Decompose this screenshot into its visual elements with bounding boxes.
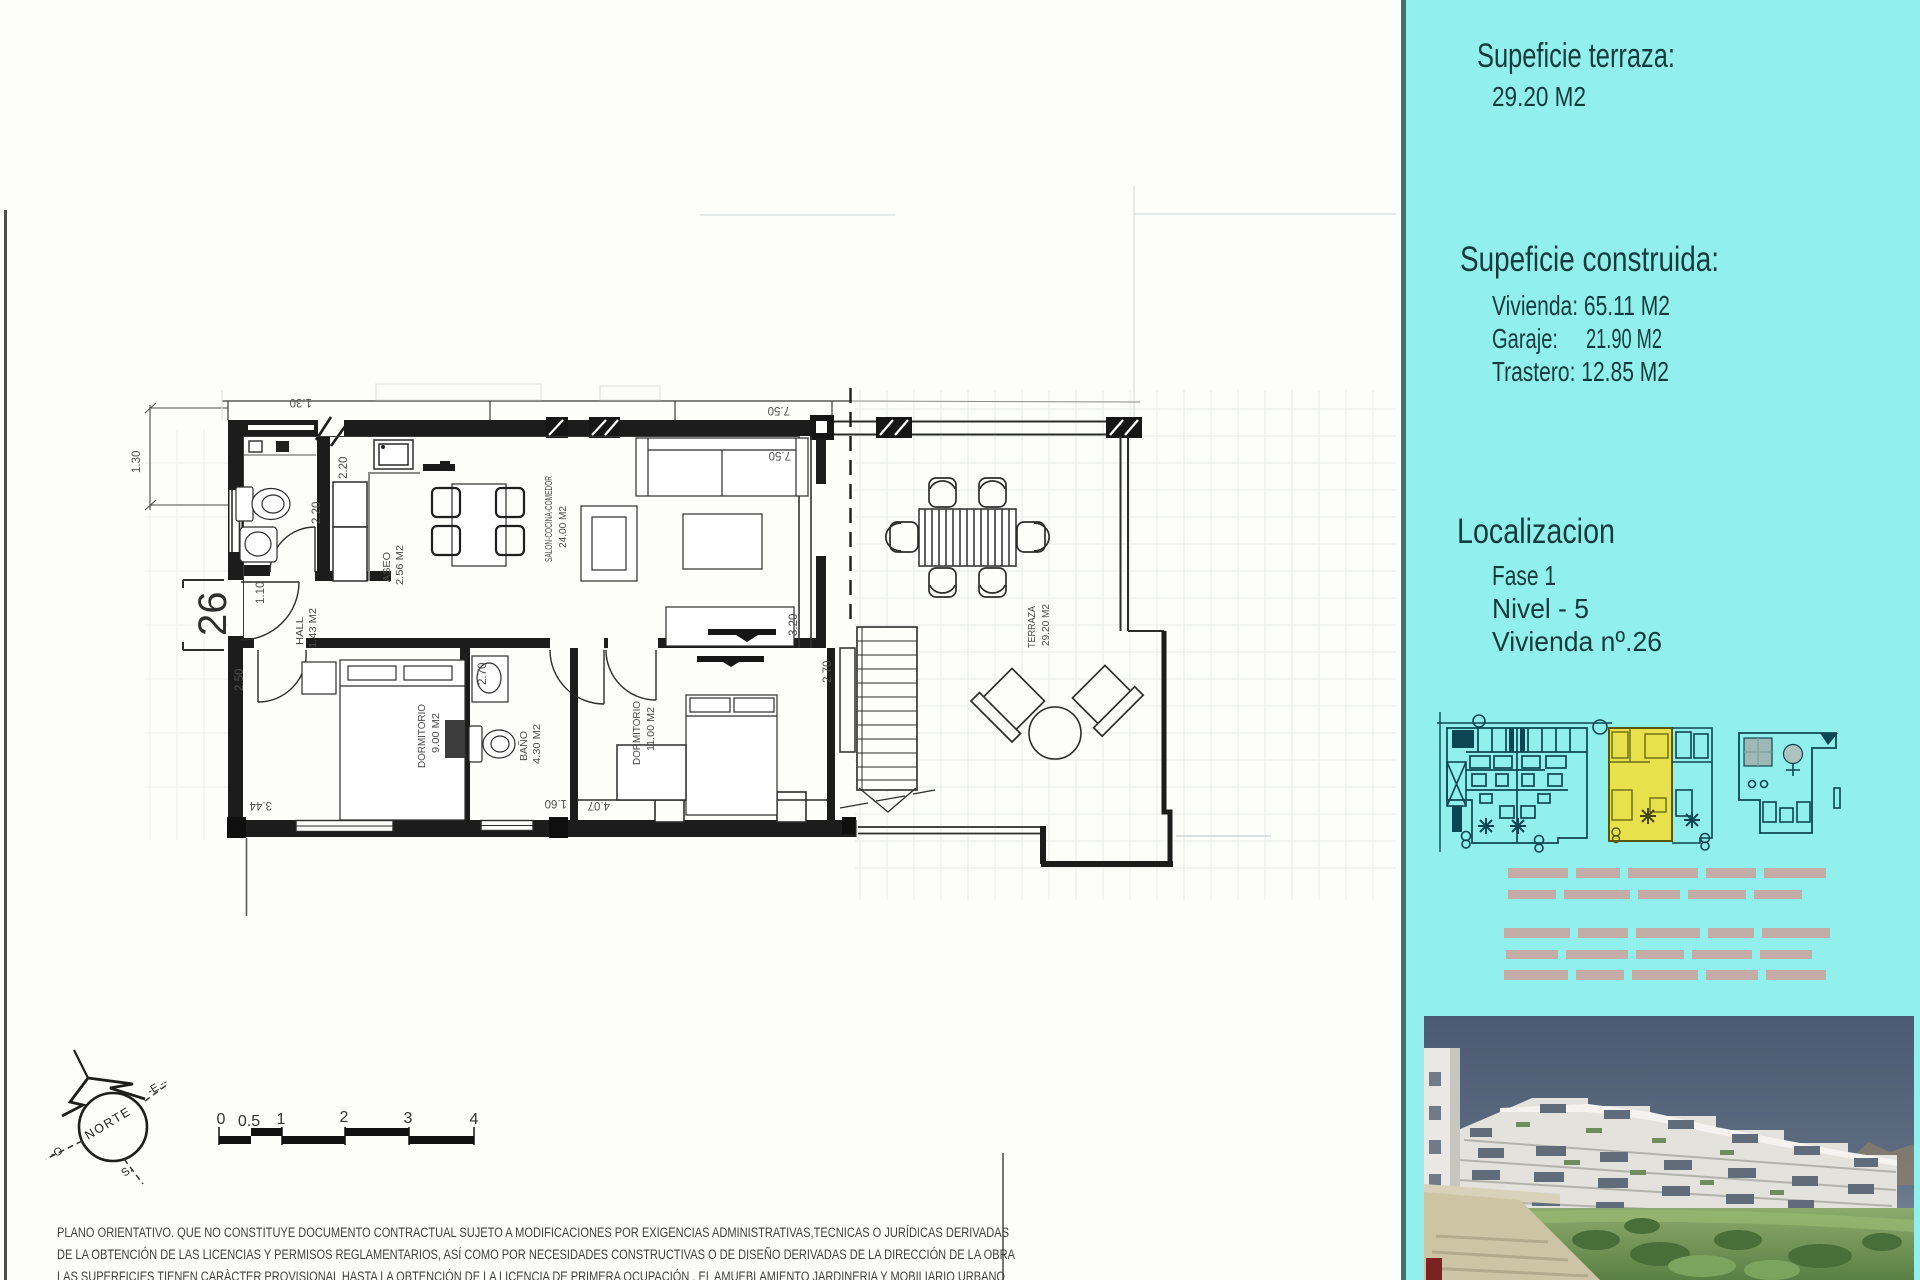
svg-text:29.20 M2: 29.20 M2 (1492, 81, 1586, 112)
svg-text:Localizacion: Localizacion (1457, 512, 1615, 551)
svg-text:Supeficie terraza:: Supeficie terraza: (1477, 37, 1675, 75)
svg-text:TERRAZA: TERRAZA (1027, 606, 1038, 648)
svg-text:Garaje:: Garaje: (1492, 323, 1558, 354)
svg-text:26: 26 (191, 592, 235, 637)
svg-text:4.30 M2: 4.30 M2 (532, 724, 543, 764)
svg-text:Vivienda: 65.11 M2: Vivienda: 65.11 M2 (1492, 290, 1670, 321)
svg-text:7.50: 7.50 (769, 449, 791, 461)
svg-text:2.50: 2.50 (234, 669, 246, 691)
svg-text:1.10: 1.10 (255, 582, 267, 604)
svg-text:2.70: 2.70 (822, 661, 834, 683)
svg-text:2.56 M2: 2.56 M2 (395, 545, 406, 585)
svg-text:Nivel - 5: Nivel - 5 (1492, 593, 1589, 624)
svg-text:DE LA OBTENCIÓN DE LAS LICENCI: DE LA OBTENCIÓN DE LAS LICENCIAS Y PERMI… (57, 1247, 1015, 1262)
svg-text:3: 3 (404, 1110, 413, 1127)
svg-text:2.70: 2.70 (477, 663, 489, 685)
svg-text:2.20: 2.20 (338, 457, 350, 479)
svg-text:0.5: 0.5 (238, 1113, 260, 1130)
svg-text:Supeficie construida:: Supeficie construida: (1460, 240, 1719, 279)
svg-text:1.30: 1.30 (290, 396, 312, 408)
svg-text:1: 1 (277, 1111, 286, 1128)
svg-text:9.00 M2: 9.00 M2 (431, 713, 442, 753)
svg-text:3.44: 3.44 (249, 799, 272, 811)
svg-text:HALL: HALL (295, 617, 306, 645)
svg-text:LAS SUPERFICIES TIENEN CARÀCTE: LAS SUPERFICIES TIENEN CARÀCTER PROVISIO… (57, 1269, 1005, 1280)
svg-text:21.90 M2: 21.90 M2 (1586, 323, 1662, 354)
svg-text:1.30: 1.30 (131, 451, 143, 473)
svg-text:1.60: 1.60 (545, 797, 567, 809)
svg-text:Vivienda nº.26: Vivienda nº.26 (1492, 626, 1662, 657)
svg-text:24.00 M2: 24.00 M2 (558, 506, 569, 548)
svg-text:2.20: 2.20 (311, 502, 323, 524)
svg-text:0: 0 (217, 1111, 226, 1128)
svg-text:ASEO: ASEO (382, 552, 393, 582)
svg-text:1.43 M2: 1.43 M2 (308, 608, 319, 648)
svg-text:11.00 M2: 11.00 M2 (646, 707, 657, 751)
svg-text:4.07: 4.07 (588, 799, 610, 811)
svg-text:SALON-COCINA-COMEDOR: SALON-COCINA-COMEDOR (544, 476, 555, 562)
svg-text:DORMITORIO: DORMITORIO (632, 701, 643, 765)
svg-text:4: 4 (470, 1111, 479, 1128)
svg-text:3.20: 3.20 (788, 614, 800, 636)
svg-text:DORMITORIO: DORMITORIO (417, 704, 428, 768)
svg-text:29.20 M2: 29.20 M2 (1041, 604, 1052, 646)
svg-text:Fase 1: Fase 1 (1492, 560, 1556, 591)
svg-text:Trastero: 12.85 M2: Trastero: 12.85 M2 (1492, 356, 1669, 387)
svg-text:BAÑO: BAÑO (517, 731, 530, 761)
svg-text:PLANO ORIENTATIVO. QUE NO CONS: PLANO ORIENTATIVO. QUE NO CONSTITUYE DOC… (57, 1225, 1009, 1240)
svg-text:7.50: 7.50 (768, 404, 790, 416)
svg-text:2: 2 (340, 1109, 349, 1126)
